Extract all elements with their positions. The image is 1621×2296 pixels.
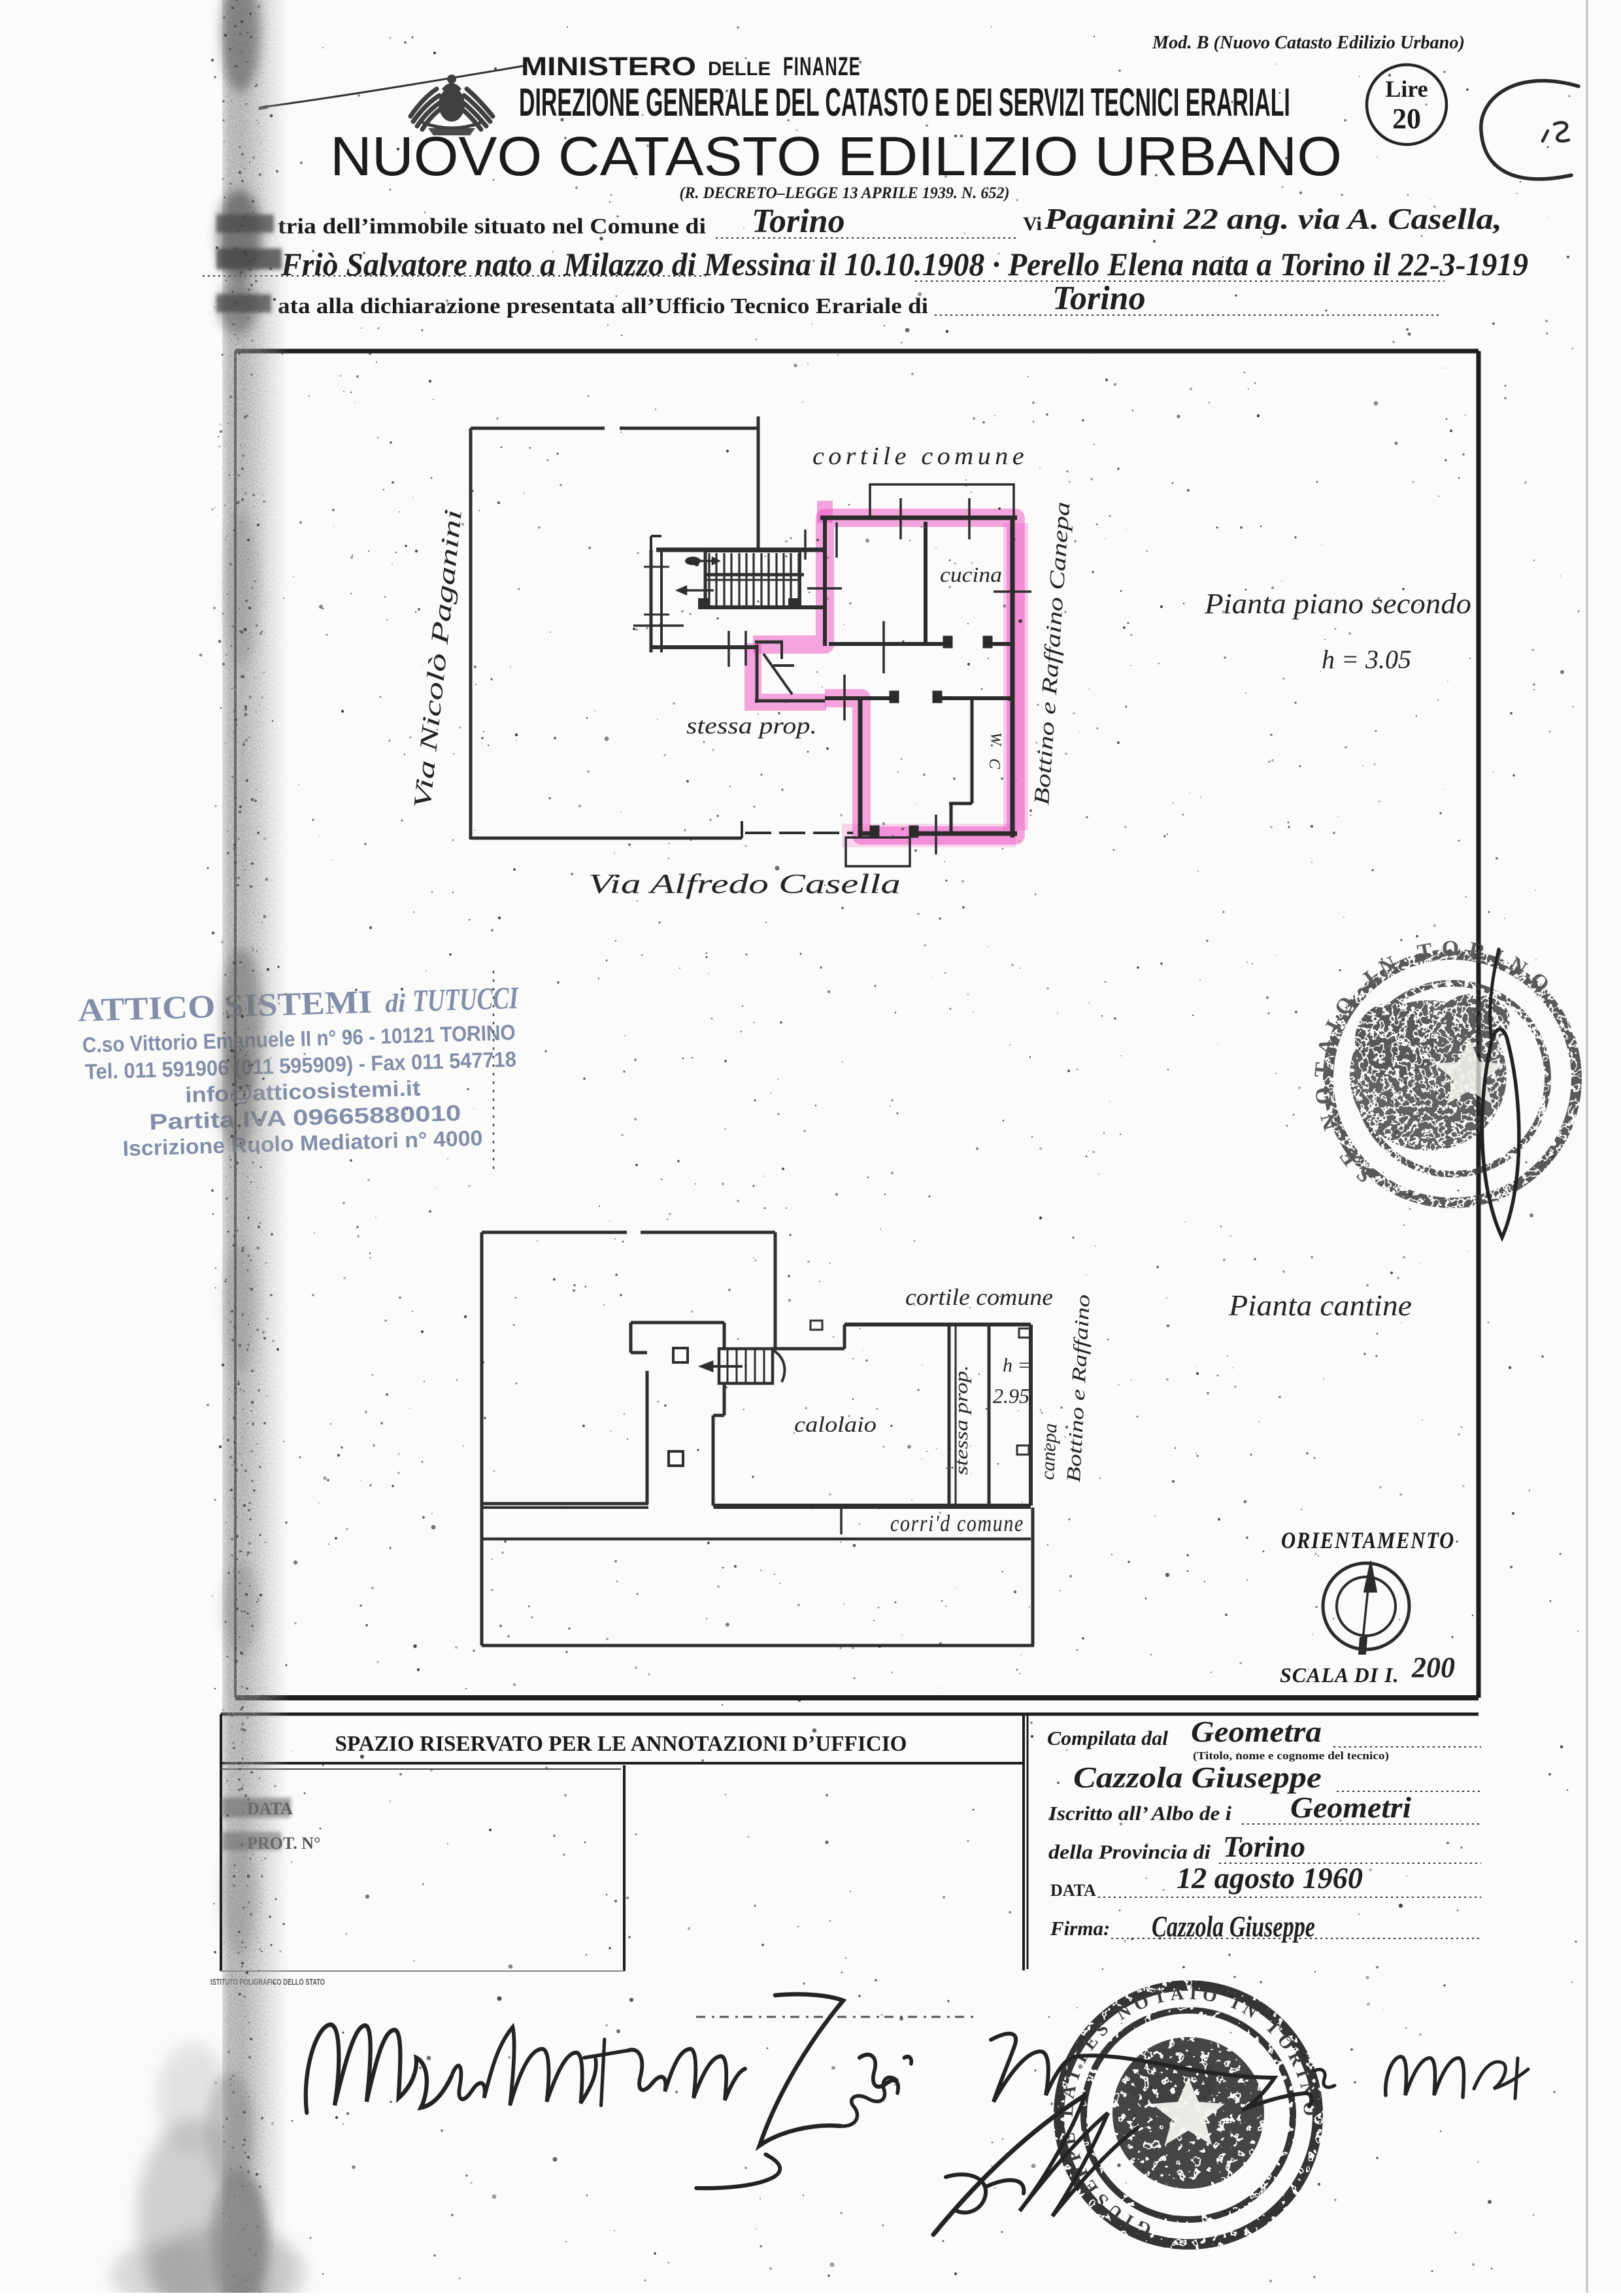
svg-text:DELLE: DELLE	[708, 58, 771, 80]
svg-text:Pianta piano secondo: Pianta piano secondo	[1204, 588, 1471, 620]
svg-text:12 agosto 1960: 12 agosto 1960	[1177, 1861, 1363, 1895]
svg-text:Pianta cantine: Pianta cantine	[1228, 1289, 1412, 1322]
svg-text:W.: W.	[987, 732, 1004, 748]
svg-text:Torino: Torino	[1223, 1830, 1305, 1863]
svg-text:MINISTERO: MINISTERO	[521, 52, 696, 81]
svg-text:Lire: Lire	[1385, 76, 1428, 102]
svg-text:di: di	[385, 988, 406, 1018]
svg-text:cortile comune: cortile comune	[905, 1284, 1053, 1310]
svg-text:calolaio: calolaio	[794, 1413, 877, 1437]
svg-text:Geometri: Geometri	[1290, 1791, 1411, 1824]
svg-text:ata alla dichiarazione pres: ata alla dichiarazione presentata all’Uf…	[278, 294, 928, 318]
svg-text:Geometra: Geometra	[1191, 1715, 1322, 1748]
svg-text:200: 200	[1411, 1651, 1455, 1683]
svg-text:Paganini 22 ang. via A. Casell: Paganini 22 ang. via A. Casella,	[1044, 202, 1502, 235]
svg-text:Via Alfredo Casella: Via Alfredo Casella	[588, 869, 901, 900]
svg-text:DATA: DATA	[1050, 1881, 1096, 1900]
svg-text:cucina: cucina	[940, 564, 1002, 587]
svg-text:cortile comune: cortile comune	[812, 443, 1028, 470]
svg-text:Friò Salvatore nato a Milazzo: Friò Salvatore nato a Milazzo di Messina…	[280, 246, 1528, 282]
svg-text:Vi: Vi	[1023, 213, 1042, 235]
svg-text:Torino: Torino	[1052, 280, 1146, 317]
svg-text:della Provincia di: della Provincia di	[1048, 1840, 1211, 1863]
svg-text:NUOVO CATASTO EDILIZIO URBANO: NUOVO CATASTO EDILIZIO URBANO	[330, 126, 1342, 187]
svg-text:Mod. B (Nuovo Catasto Edilizio: Mod. B (Nuovo Catasto Edilizio Urbano)	[1152, 32, 1465, 53]
svg-text:stessa prop.: stessa prop.	[686, 713, 817, 739]
svg-text:2.95: 2.95	[993, 1384, 1029, 1408]
svg-text:Cazzola Giuseppe: Cazzola Giuseppe	[1152, 1910, 1315, 1943]
svg-text:C: C	[986, 758, 1003, 769]
svg-text:(R. DECRETO–LEGGE 13 APRILE 19: (R. DECRETO–LEGGE 13 APRILE 1939. N. 652…	[680, 184, 1010, 202]
svg-text:h =: h =	[1003, 1355, 1031, 1376]
svg-text:ORIENTAMENTO: ORIENTAMENTO	[1281, 1527, 1455, 1553]
svg-text:DIREZIONE GENERALE DEL CATASTO: DIREZIONE GENERALE DEL CATASTO E DEI SER…	[519, 80, 1290, 124]
svg-text:SPAZIO RISERVATO PER LE AN: SPAZIO RISERVATO PER LE ANNOTAZIONI D’UF…	[335, 1732, 907, 1756]
svg-text:20: 20	[1392, 103, 1421, 135]
svg-text:FINANZE: FINANZE	[783, 52, 861, 81]
svg-text:stessa prop.: stessa prop.	[952, 1365, 972, 1475]
svg-text:SCALA DI I.: SCALA DI I.	[1280, 1663, 1399, 1687]
svg-text:Cazzola Giuseppe: Cazzola Giuseppe	[1073, 1761, 1322, 1794]
svg-text:Torino: Torino	[752, 203, 845, 240]
svg-text:tria dell’immobile situato: tria dell’immobile situato nel Comune di	[278, 214, 706, 239]
svg-text:TUTUCCI: TUTUCCI	[412, 981, 520, 1019]
svg-text:canepa: canepa	[1037, 1423, 1061, 1480]
svg-text:corri'd comune: corri'd comune	[890, 1510, 1024, 1536]
svg-text:Compilata dal: Compilata dal	[1047, 1727, 1168, 1749]
svg-text:Iscritto all’ Albo de i: Iscritto all’ Albo de i	[1048, 1802, 1231, 1825]
svg-text:h = 3.05: h = 3.05	[1322, 645, 1411, 674]
svg-text:Firma:: Firma:	[1050, 1917, 1110, 1940]
